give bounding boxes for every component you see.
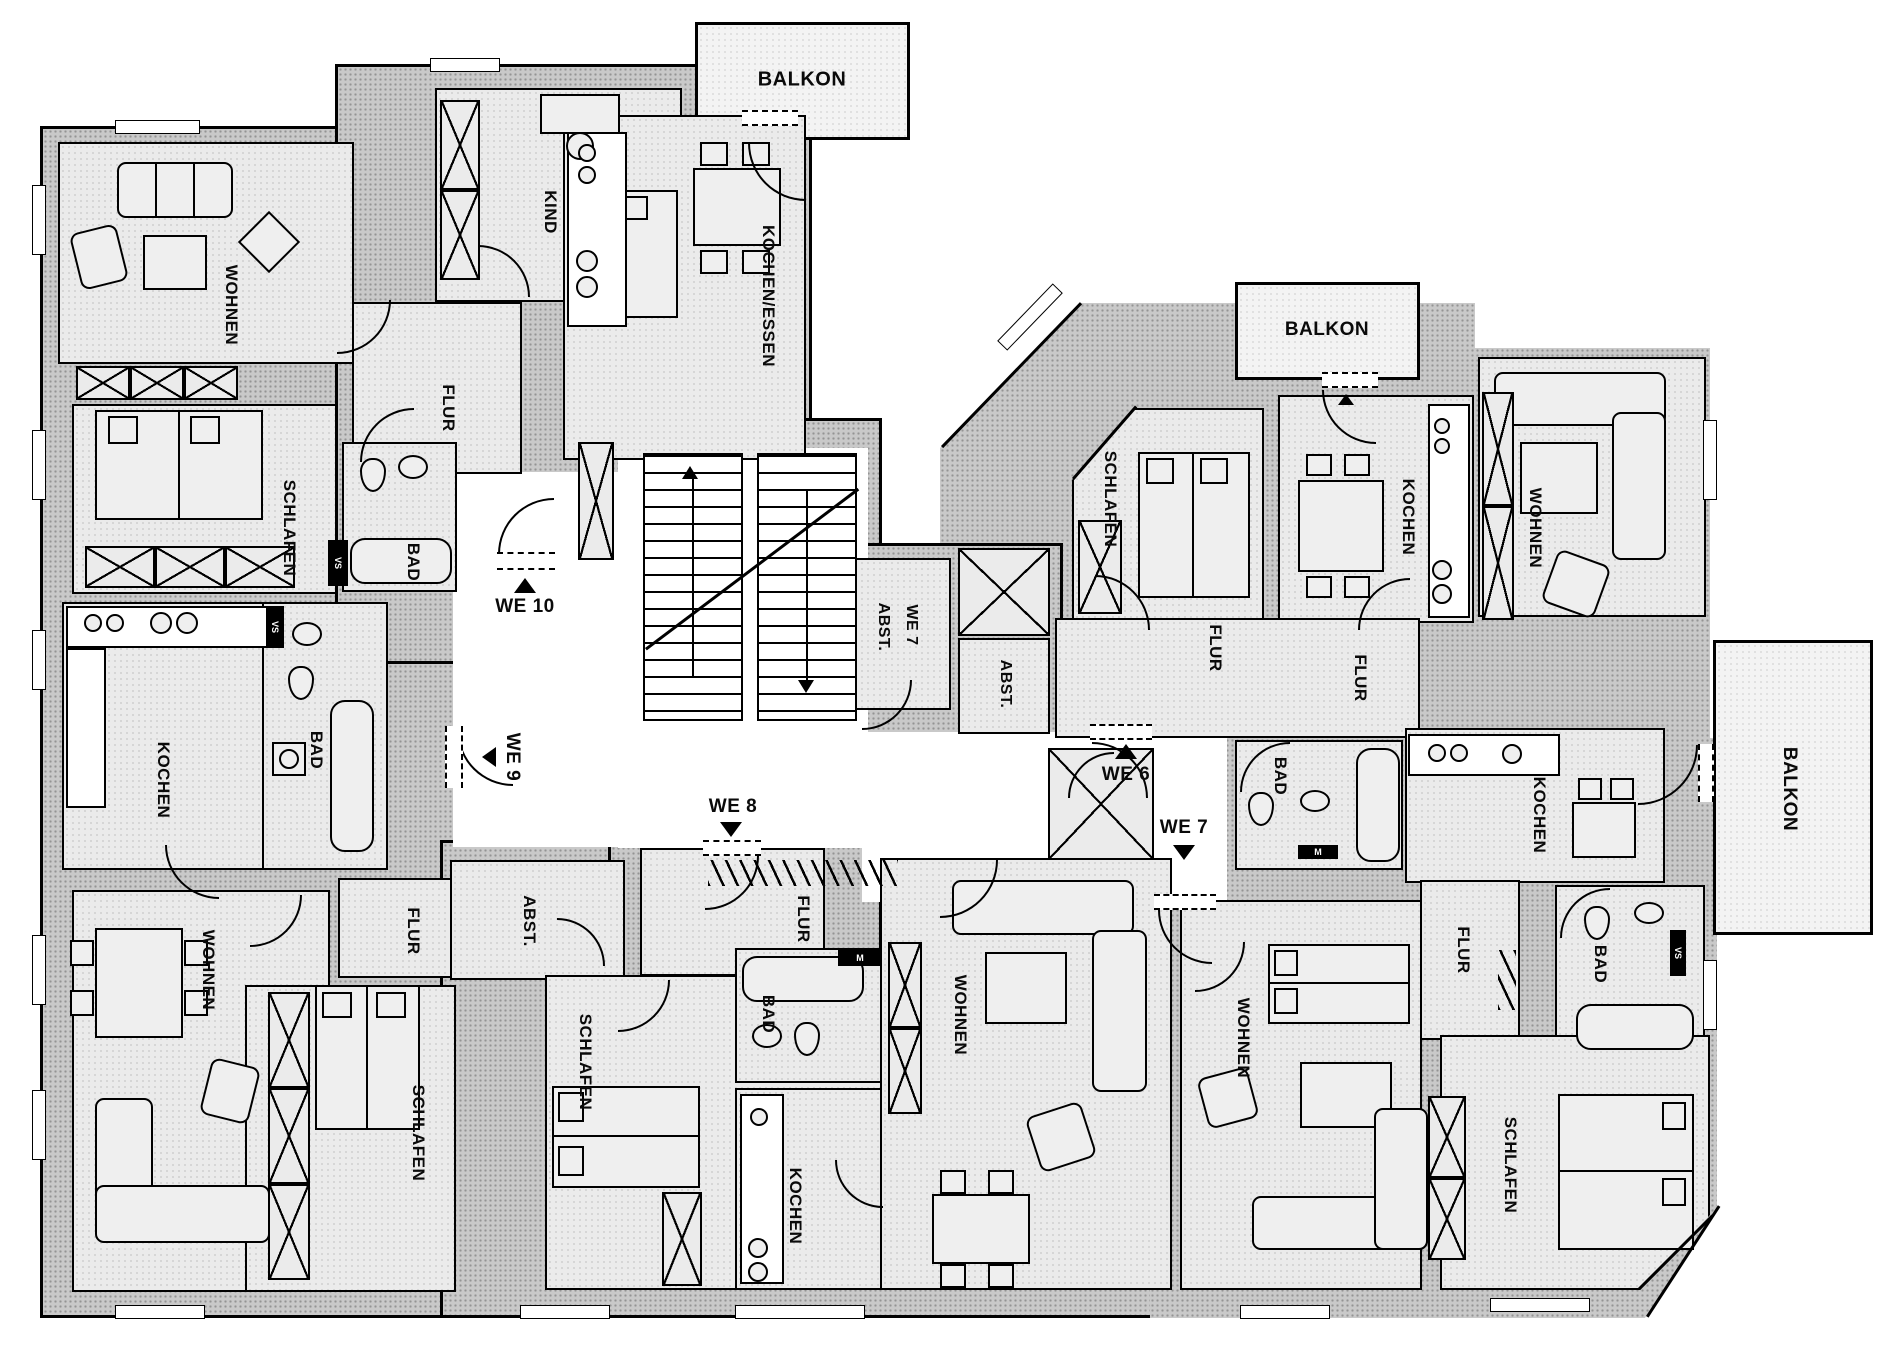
furniture-table — [1298, 480, 1384, 572]
shaft-marker-text: VS — [270, 621, 280, 633]
window — [1703, 420, 1717, 500]
furniture-chair — [1306, 454, 1332, 476]
kitchen-counter — [66, 648, 106, 808]
bath-sink — [292, 622, 322, 646]
bed-divider — [178, 412, 180, 518]
furniture-table — [143, 235, 207, 290]
shaft-marker-text: VS — [1673, 947, 1683, 959]
we8-entrance-arrow-icon — [720, 822, 742, 837]
bed-pillow — [1274, 988, 1298, 1014]
room-label: BAD — [1590, 945, 1610, 983]
stair-arrow-up — [692, 478, 694, 678]
shaft-marker-text: M — [856, 953, 864, 963]
kitchen-sink — [1434, 418, 1450, 434]
furniture-chair — [1344, 454, 1370, 476]
room-label: BAD — [306, 731, 326, 769]
room-label: KOCHEN — [785, 1168, 805, 1245]
furniture-wardrobe — [888, 1028, 922, 1114]
we9-entrance-arrow-icon — [482, 747, 496, 767]
furniture-chair — [70, 940, 94, 966]
furniture-wardrobe — [440, 100, 480, 190]
we6-entrance-arrow-icon — [1115, 744, 1137, 759]
apartment-label-we8: WE 8 — [709, 796, 757, 818]
bed-divider — [554, 1135, 698, 1137]
room-label: FLUR — [1350, 654, 1370, 701]
door-opening — [1154, 894, 1216, 910]
furniture-sofa — [1092, 930, 1147, 1092]
we10-entrance-arrow-icon — [514, 578, 536, 593]
bed-pillow — [190, 416, 220, 444]
stove-burner — [1450, 744, 1468, 762]
bed-pillow — [108, 416, 138, 444]
window — [1490, 1298, 1590, 1312]
shaft-marker-text: M — [1314, 847, 1322, 857]
furniture-wardrobe — [888, 942, 922, 1028]
shaft-marker: VS — [266, 606, 284, 648]
room-label: KOCHEN/ESSEN — [758, 225, 778, 367]
room-label: SCHLAFEN — [1100, 451, 1120, 548]
bath-sink — [1300, 790, 1330, 812]
kitchen-sink — [578, 144, 596, 162]
shaft-marker: VS — [328, 540, 348, 586]
furniture-wardrobe — [958, 548, 1050, 636]
room-label: ABST. — [874, 603, 892, 652]
bathtub — [1576, 1004, 1694, 1050]
furniture-wardrobe — [1428, 1096, 1466, 1178]
window — [735, 1305, 865, 1319]
room-label: FLUR — [438, 384, 458, 431]
room-label: FLUR — [403, 907, 423, 954]
bathtub — [1356, 748, 1400, 862]
furniture-table — [95, 928, 183, 1038]
balcony-door-arrow-icon — [1338, 394, 1354, 405]
furniture-wardrobe — [184, 366, 238, 400]
window — [115, 120, 200, 134]
window — [32, 630, 46, 690]
room-label: WOHNEN — [950, 975, 970, 1055]
room-label: WOHNEN — [1525, 488, 1545, 568]
kitchen-sink — [84, 614, 102, 632]
bed-pillow — [1662, 1102, 1686, 1130]
stove-burner — [748, 1238, 768, 1258]
room-label: BAD — [758, 995, 778, 1033]
room-label: SCHLAFEN — [575, 1014, 595, 1111]
window — [32, 935, 46, 1005]
room-label: WOHNEN — [198, 930, 218, 1010]
furniture-wardrobe — [268, 1184, 310, 1280]
furniture-chair — [1578, 778, 1602, 800]
shaft-marker: M — [838, 950, 882, 966]
window — [430, 58, 500, 72]
bed-divider — [1560, 1170, 1692, 1172]
stove-burner — [576, 276, 598, 298]
air-shaft — [578, 442, 614, 560]
bed-pillow — [376, 992, 406, 1018]
apartment-label-we7: WE 7 — [1160, 817, 1208, 839]
stove-burner — [1428, 744, 1446, 762]
furniture-chair — [1610, 778, 1634, 800]
bed-pillow — [1274, 950, 1298, 976]
furniture-desk — [540, 94, 620, 134]
window — [32, 430, 46, 500]
balcony-label: BALKON — [1285, 319, 1369, 341]
kitchen-sink — [1434, 438, 1450, 454]
sofa-cushion — [193, 164, 195, 216]
furniture-sofa — [117, 162, 233, 218]
furniture-wardrobe — [1482, 506, 1514, 620]
stove-burner — [576, 250, 598, 272]
door-opening — [1322, 372, 1378, 388]
stove-burner — [150, 612, 172, 634]
furniture-sofa — [1374, 1108, 1428, 1250]
stove-burner — [1432, 560, 1452, 580]
balcony-label: BALKON — [758, 69, 847, 92]
room-label: ABST. — [519, 895, 539, 947]
door-opening — [742, 110, 798, 126]
furniture-chair — [1306, 576, 1332, 598]
furniture-table — [1572, 802, 1636, 858]
radiator — [1498, 950, 1516, 1010]
furniture-wardrobe — [155, 546, 225, 588]
bathtub — [350, 538, 452, 584]
apartment-label-we10: WE 10 — [495, 596, 555, 618]
kitchen-sink — [750, 1108, 768, 1126]
room-label: WOHNEN — [1233, 998, 1253, 1078]
bath-sink — [1634, 902, 1664, 924]
door-opening — [1698, 744, 1714, 802]
sofa-cushion — [155, 164, 157, 216]
bed-divider — [1192, 454, 1194, 596]
stove-burner — [1432, 584, 1452, 604]
furniture-wardrobe — [440, 190, 480, 280]
furniture-chair — [940, 1264, 966, 1288]
furniture-sofa — [95, 1185, 270, 1243]
furniture-wardrobe — [76, 366, 130, 400]
bed-divider — [366, 987, 368, 1128]
kitchen-sink — [578, 166, 596, 184]
bathtub — [330, 700, 374, 852]
furniture-chair — [70, 990, 94, 1016]
window — [32, 185, 46, 255]
balcony-label: BALKON — [1778, 747, 1800, 831]
furniture-wardrobe — [130, 366, 184, 400]
room-label: FLUR — [1205, 624, 1225, 671]
furniture-wardrobe — [268, 992, 310, 1088]
shaft-marker: VS — [1670, 930, 1686, 976]
kitchen-sink — [1502, 744, 1522, 764]
shaft-marker: M — [1298, 845, 1338, 859]
room-flur-we9 — [338, 878, 456, 978]
bed-pillow — [1662, 1178, 1686, 1206]
bed-pillow — [322, 992, 352, 1018]
stair-arrow-down — [806, 490, 808, 680]
bed-divider — [1270, 982, 1408, 984]
room-label: KOCHEN — [1529, 777, 1549, 854]
furniture-chair — [988, 1170, 1014, 1194]
room-label: BAD — [1270, 757, 1290, 795]
furniture-wardrobe — [1482, 392, 1514, 506]
stove-burner — [748, 1262, 768, 1282]
furniture-chair — [988, 1264, 1014, 1288]
room-label: SCHLAFEN — [279, 480, 299, 577]
room-label: KOCHEN — [153, 742, 173, 819]
bed-pillow — [1200, 458, 1228, 484]
kitchen-sink — [106, 614, 124, 632]
furniture-table — [985, 952, 1067, 1024]
room-label: KIND — [540, 190, 560, 234]
furniture-sofa — [1612, 412, 1666, 560]
kitchen-counter — [567, 132, 627, 327]
room-label: SCHLAFEN — [408, 1085, 428, 1182]
stair-arrow-down-icon — [798, 680, 814, 693]
bed-pillow — [558, 1146, 584, 1176]
furniture-wardrobe — [662, 1192, 702, 1286]
window — [1240, 1305, 1330, 1319]
stair-arrow-up-icon — [682, 466, 698, 479]
window — [32, 1090, 46, 1160]
door-opening — [497, 552, 555, 570]
window — [1703, 960, 1717, 1030]
furniture-wardrobe — [1428, 1178, 1466, 1260]
floor-plan: BALKON BALKON BALKON WOHNEN KIND FLUR SC… — [0, 0, 1890, 1350]
apartment-label-we9: WE 9 — [501, 733, 523, 781]
room-label: FLUR — [1453, 926, 1473, 973]
room-label: WE 7 — [902, 604, 920, 645]
stove-burner — [176, 612, 198, 634]
furniture-chair — [700, 142, 728, 166]
room-label: FLUR — [793, 895, 813, 942]
apartment-label-we6: WE 6 — [1102, 764, 1150, 786]
furniture-chair — [1344, 576, 1370, 598]
furniture-chair — [940, 1170, 966, 1194]
window — [520, 1305, 610, 1319]
furniture-wardrobe — [85, 546, 155, 588]
door-opening — [703, 840, 761, 856]
room-label: ABST. — [996, 660, 1014, 709]
washing-machine-door — [279, 749, 299, 769]
furniture-chair — [700, 250, 728, 274]
door-opening — [445, 726, 463, 788]
furniture-wardrobe — [268, 1088, 310, 1184]
window — [115, 1305, 205, 1319]
shaft-marker-text: VS — [333, 557, 343, 569]
room-label: BAD — [403, 543, 423, 581]
furniture-table — [932, 1194, 1030, 1264]
room-label: KOCHEN — [1398, 479, 1418, 556]
we7-entrance-arrow-icon — [1173, 845, 1195, 860]
door-opening — [1090, 724, 1152, 740]
bed-pillow — [1146, 458, 1174, 484]
room-label: WOHNEN — [221, 265, 241, 345]
room-label: SCHLAFEN — [1500, 1117, 1520, 1214]
